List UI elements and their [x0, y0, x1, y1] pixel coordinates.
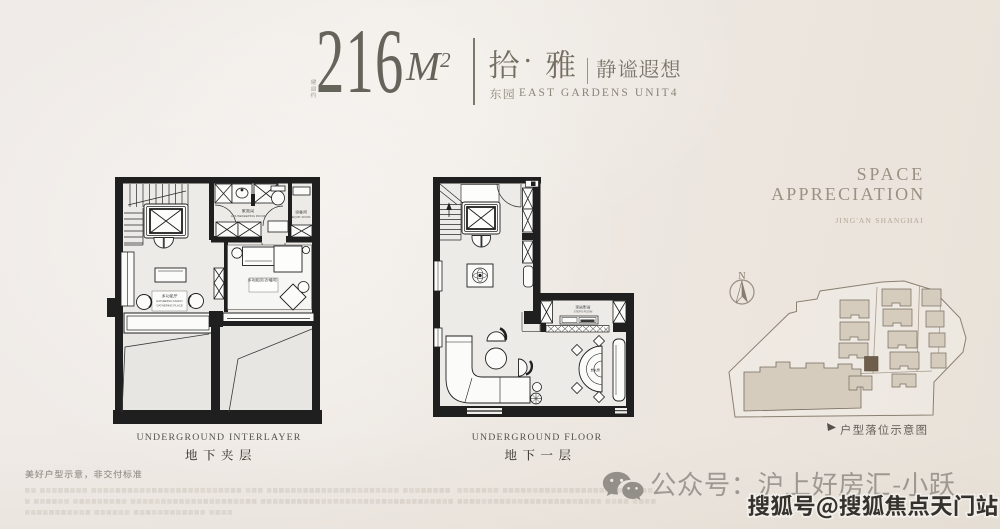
svg-text:N: N	[738, 271, 745, 282]
svg-text:GATHERING PLACE: GATHERING PLACE	[156, 304, 183, 308]
svg-text:HOUSEKEEPING ROOM: HOUSEKEEPING ROOM	[231, 214, 266, 218]
svg-text:EQUIP. ROOM: EQUIP. ROOM	[292, 215, 311, 219]
svg-text:STEPS ROOM: STEPS ROOM	[574, 310, 593, 314]
svg-text:GATHERING FAMILY: GATHERING FAMILY	[156, 299, 183, 303]
